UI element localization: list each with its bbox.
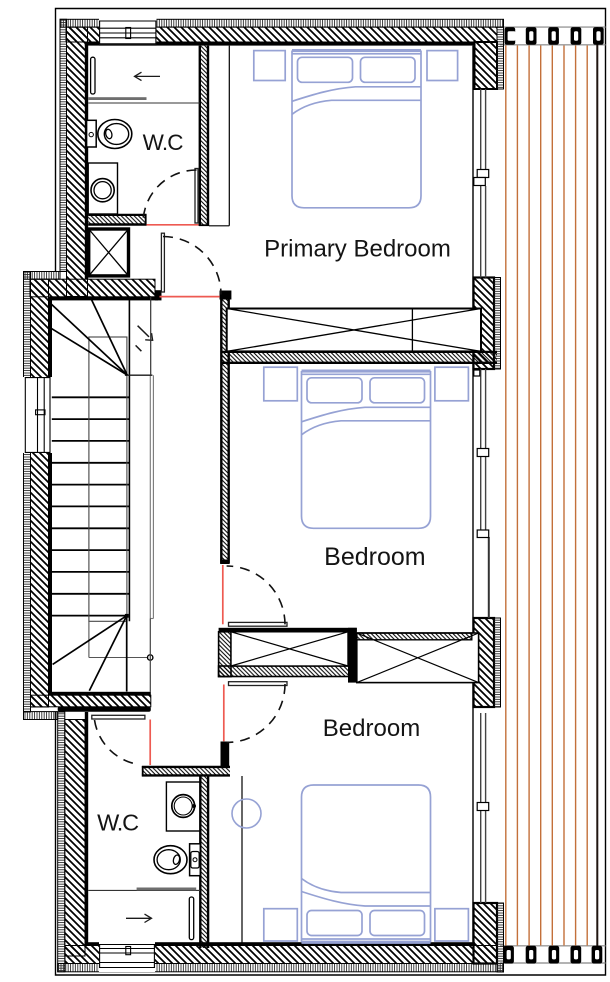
svg-text:Primary Bedroom: Primary Bedroom (264, 236, 451, 263)
svg-text:Bedroom: Bedroom (323, 715, 420, 742)
svg-text:W.C: W.C (97, 810, 139, 836)
svg-text:Bedroom: Bedroom (324, 543, 425, 571)
svg-text:W.C: W.C (143, 130, 184, 155)
